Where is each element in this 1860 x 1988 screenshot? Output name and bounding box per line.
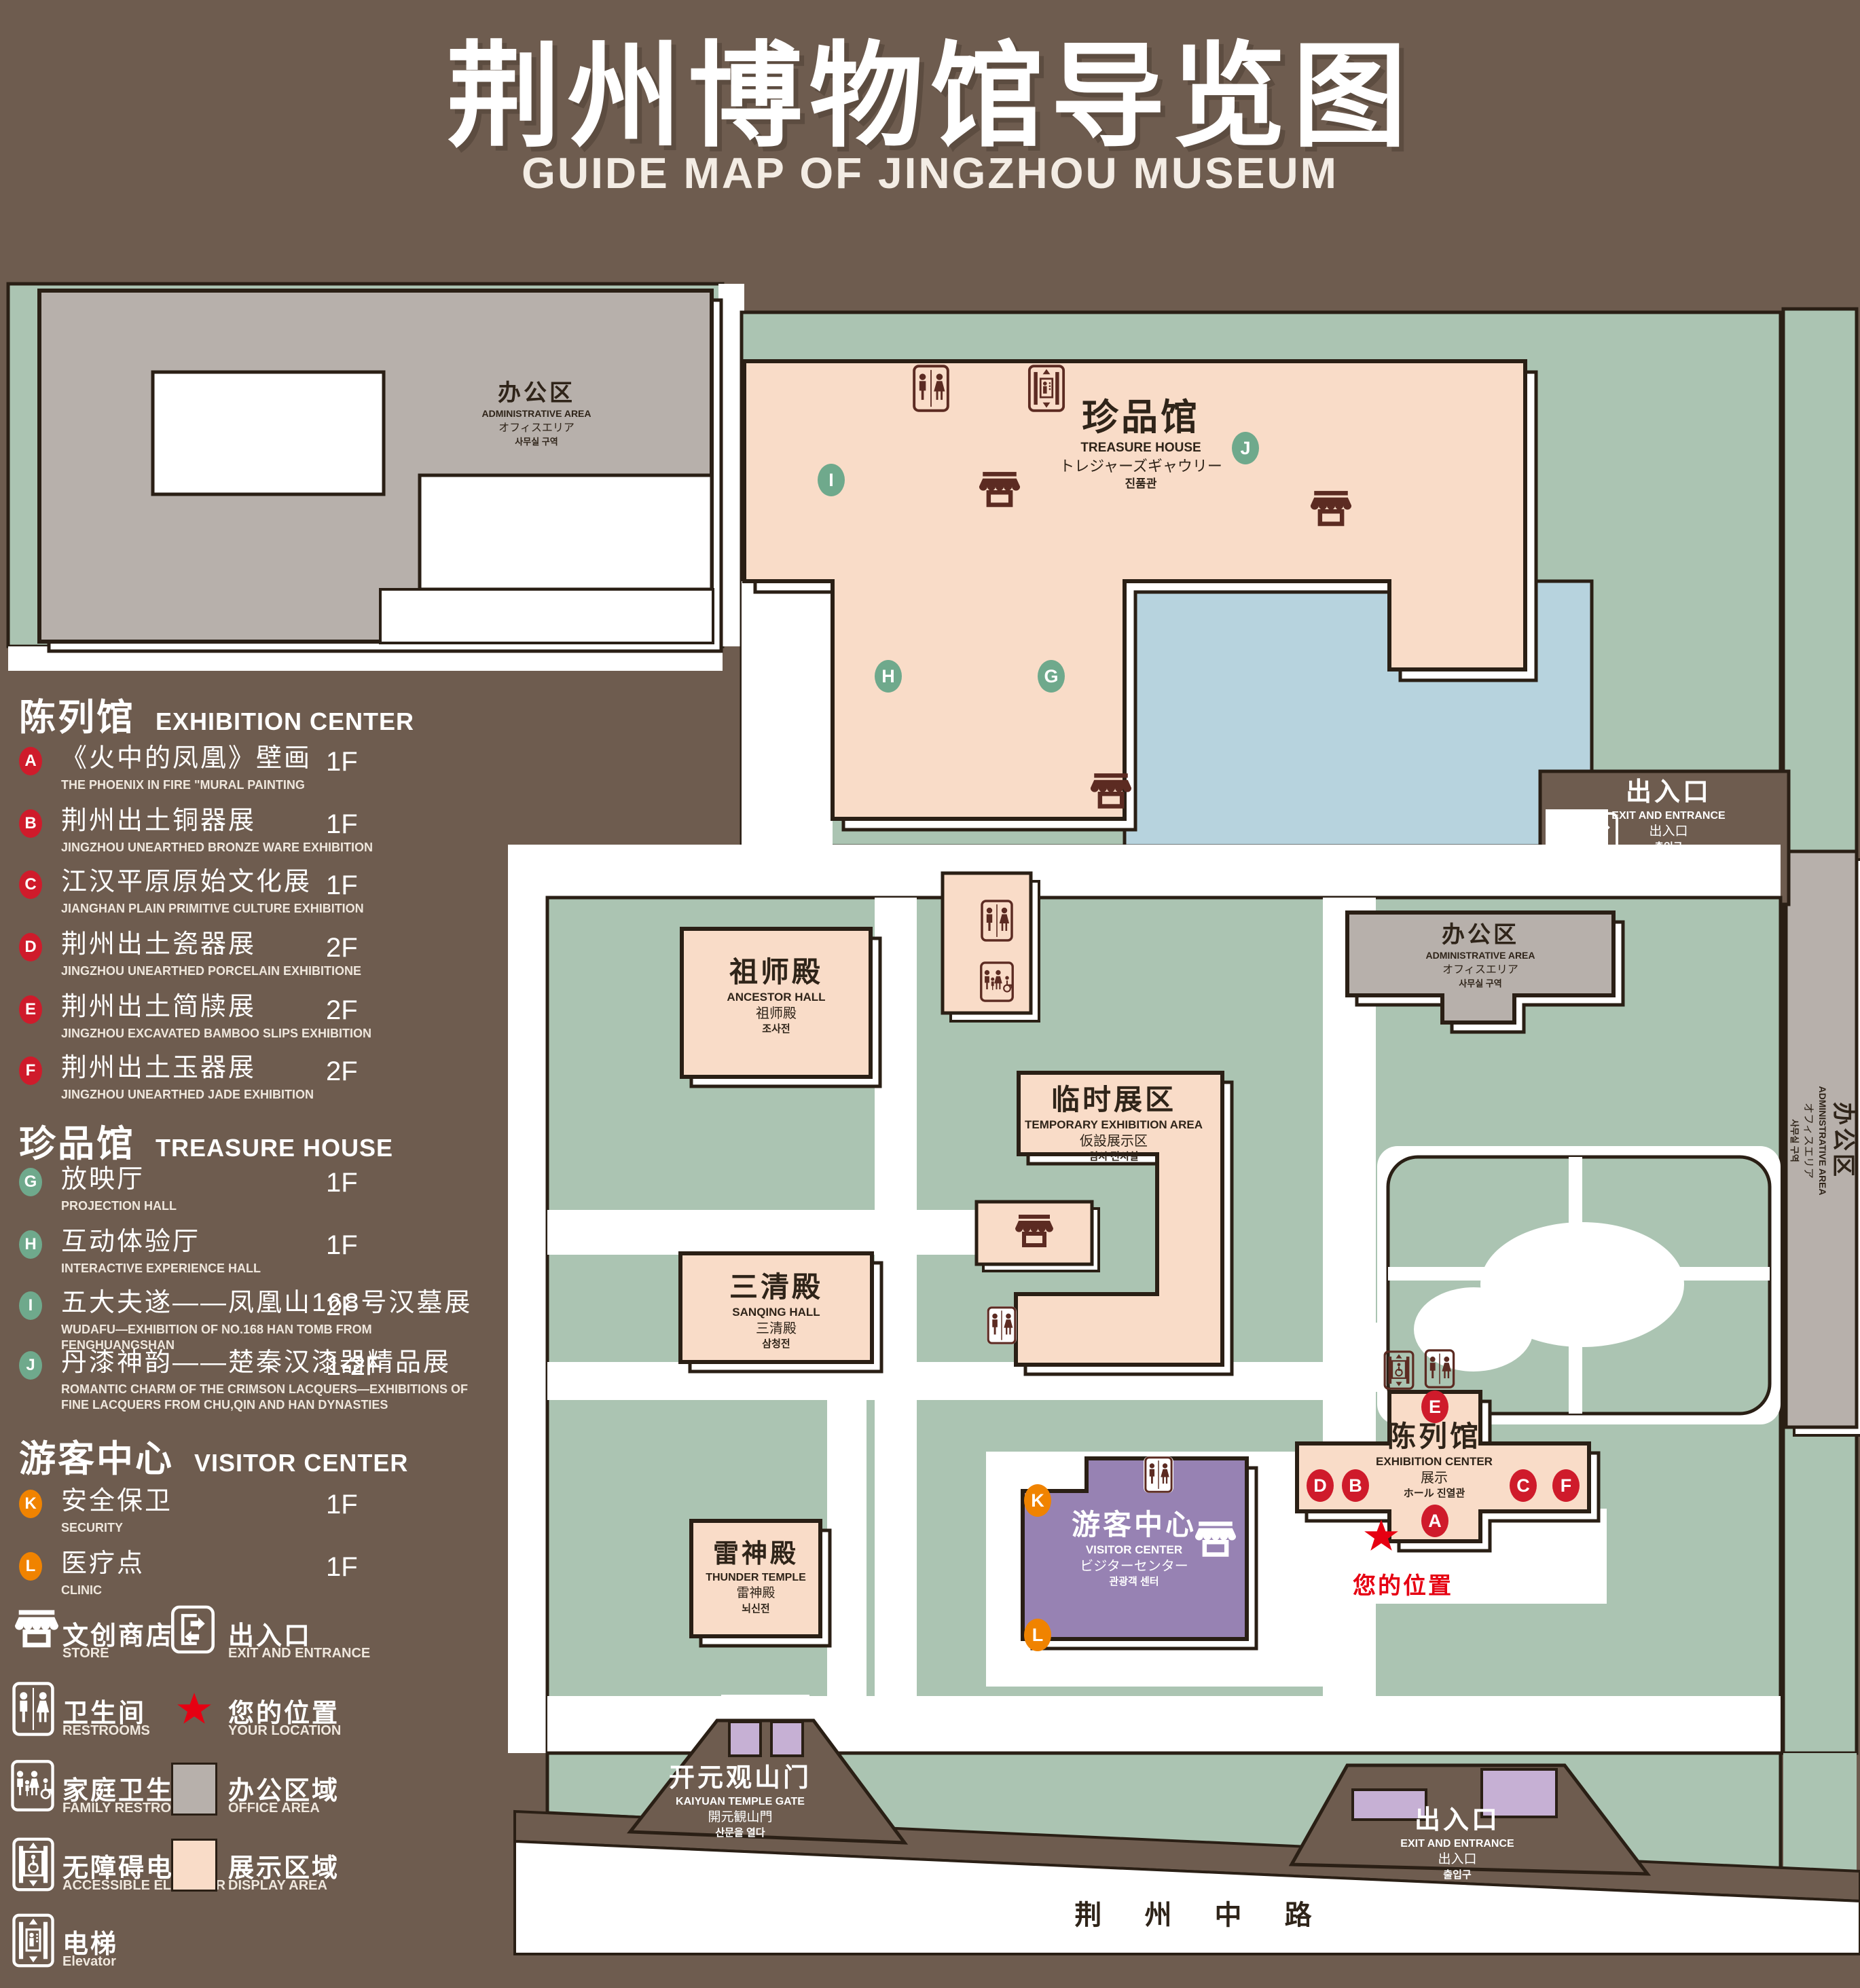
marker-K: K xyxy=(1024,1484,1051,1517)
elevator-icon xyxy=(12,1912,54,1969)
badge-I: I xyxy=(19,1291,42,1320)
store-icon xyxy=(1195,1521,1237,1559)
marker-I: I xyxy=(818,464,845,496)
store-icon xyxy=(1090,773,1132,811)
store-icon xyxy=(1015,1214,1054,1249)
location-star-icon xyxy=(1364,1519,1399,1553)
office-area-swatch xyxy=(171,1763,217,1816)
legend-item-H: H 互动体验厅INTERACTIVE EXPERIENCE HALL 1F xyxy=(19,1229,494,1276)
marker-J: J xyxy=(1232,432,1259,464)
restroom-icon xyxy=(1144,1456,1173,1493)
page-subtitle: GUIDE MAP OF JINGZHOU MUSEUM xyxy=(0,148,1860,198)
marker-A: A xyxy=(1421,1505,1448,1537)
store-icon xyxy=(1310,490,1352,528)
badge-H: H xyxy=(19,1230,42,1259)
display-area-swatch xyxy=(171,1839,217,1892)
marker-G: G xyxy=(1038,660,1065,693)
marker-B: B xyxy=(1342,1469,1369,1502)
section-treasure-house: 珍品馆TREASURE HOUSE xyxy=(19,1113,393,1167)
symbol-location-sublabel: YOUR LOCATION xyxy=(228,1723,341,1739)
label-exhibition-center: 陈列馆 EXHIBITION CENTER 展示 ホール 진열관 xyxy=(1376,1420,1493,1503)
symbol-exit-sublabel: EXIT AND ENTRANCE xyxy=(228,1646,370,1661)
label-exit-bottom: 出入口 EXIT AND ENTRANCE 出入口 출입구 xyxy=(1400,1806,1514,1884)
exit-icon xyxy=(1582,811,1618,853)
restroom-icon xyxy=(1424,1349,1455,1388)
label-thunder-temple: 雷神殿 THUNDER TEMPLE 雷神殿 뇌신전 xyxy=(706,1540,806,1618)
label-ancestor-hall: 祖师殿 ANCESTOR HALL 祖师殿 조사전 xyxy=(727,956,825,1038)
legend-item-A: A 《火中的凤凰》壁画THE PHOENIX IN FIRE "MURAL PA… xyxy=(19,745,494,793)
symbol-store-sublabel: STORE xyxy=(62,1646,109,1661)
legend-item-F: F 荆州出土玉器展JINGZHOU UNEARTHED JADE EXHIBIT… xyxy=(19,1055,494,1103)
badge-G: G xyxy=(19,1168,42,1196)
restroom-icon xyxy=(12,1681,54,1737)
location-star-icon xyxy=(177,1692,212,1726)
badge-D: D xyxy=(19,933,42,961)
label-treasure-house: 珍品馆 TREASURE HOUSE トレジャーズギャウリー 진품관 xyxy=(1059,397,1222,493)
legend-item-K: K 安全保卫SECURITY 1F xyxy=(19,1488,494,1536)
family-restroom-icon xyxy=(979,961,1015,1002)
label-admin-top-left: 办公区 ADMINISTRATIVE AREA オフィスエリア 사무실 구역 xyxy=(482,380,591,449)
label-exit-right: 出入口 EXIT AND ENTRANCE 出入口 출입구 xyxy=(1611,778,1725,856)
legend-item-G: G 放映厅PROJECTION HALL 1F xyxy=(19,1166,494,1214)
marker-C: C xyxy=(1510,1469,1537,1502)
guide-map: 荆州博物馆导览图 GUIDE MAP OF JINGZHOU MUSEUM 办公… xyxy=(0,0,1860,1988)
elevator-icon xyxy=(1027,365,1065,412)
legend-item-L: L 医疗点CLINIC 1F xyxy=(19,1551,494,1598)
marker-H: H xyxy=(875,660,902,693)
badge-F: F xyxy=(19,1056,42,1085)
badge-J: J xyxy=(19,1351,42,1380)
road-name: 荆 州 中 路 xyxy=(1074,1893,1329,1932)
your-location-label: 您的位置 xyxy=(1353,1567,1453,1600)
symbol-display-sublabel: DISPLAY AREA xyxy=(228,1878,327,1894)
legend-item-B: B 荆州出土铜器展JINGZHOU UNEARTHED BRONZE WARE … xyxy=(19,808,494,855)
symbol-elevator-sublabel: Elevator xyxy=(62,1954,116,1970)
label-visitor-center: 游客中心 VISITOR CENTER ビジターセンター 관광객 센터 xyxy=(1072,1509,1197,1591)
store-icon xyxy=(979,471,1021,509)
section-visitor-center: 游客中心VISITOR CENTER xyxy=(19,1429,408,1482)
marker-D: D xyxy=(1307,1469,1334,1502)
label-sanqing-hall: 三清殿 SANQING HALL 三清殿 삼청전 xyxy=(729,1271,823,1353)
label-admin-east-strip: 办公区 ADMINISTRATIVE AREA オフィスエリア 사무실 구역 xyxy=(1787,1086,1856,1196)
marker-L: L xyxy=(1024,1619,1051,1651)
family-restroom-icon xyxy=(11,1759,54,1813)
accessible-elevator-icon xyxy=(12,1836,54,1893)
restroom-icon xyxy=(980,900,1014,942)
marker-F: F xyxy=(1552,1469,1580,1502)
badge-A: A xyxy=(19,747,42,775)
legend-item-E: E 荆州出土简牍展JINGZHOU EXCAVATED BAMBOO SLIPS… xyxy=(19,994,494,1042)
badge-C: C xyxy=(19,870,42,899)
label-temporary-exhibition: 临时展区 TEMPORARY EXHIBITION AREA 仮設展示区 임시 … xyxy=(1025,1084,1203,1166)
badge-K: K xyxy=(19,1490,42,1518)
legend-item-C: C 江汉平原原始文化展JIANGHAN PLAIN PRIMITIVE CULT… xyxy=(19,869,494,917)
label-kaiyuan-gate: 开元观山门 KAIYUAN TEMPLE GATE 開元観山門 산문을 열다 xyxy=(669,1764,812,1842)
symbol-restroom-sublabel: RESTROOMS xyxy=(62,1723,150,1739)
section-exhibition-center: 陈列馆EXHIBITION CENTER xyxy=(19,687,414,741)
marker-E: E xyxy=(1421,1391,1448,1423)
store-icon xyxy=(15,1609,58,1650)
accessible-elevator-icon xyxy=(1383,1350,1415,1390)
badge-B: B xyxy=(19,809,42,838)
legend-item-I: I 五大夫遂——凤凰山168号汉墓展WUDAFU—EXHIBITION OF N… xyxy=(19,1290,494,1354)
page-title: 荆州博物馆导览图 xyxy=(0,4,1860,169)
label-admin-center-right: 办公区 ADMINISTRATIVE AREA オフィスエリア 사무실 구역 xyxy=(1426,922,1535,991)
restroom-icon xyxy=(912,365,950,412)
badge-E: E xyxy=(19,995,42,1024)
exit-icon xyxy=(171,1605,215,1654)
legend-item-D: D 荆州出土瓷器展JINGZHOU UNEARTHED PORCELAIN EX… xyxy=(19,932,494,979)
badge-L: L xyxy=(19,1552,42,1581)
legend-item-J: J 丹漆神韵——楚秦汉漆器精品展ROMANTIC CHARM OF THE CR… xyxy=(19,1350,494,1414)
symbol-office-sublabel: OFFICE AREA xyxy=(228,1801,320,1816)
restroom-icon xyxy=(987,1306,1017,1344)
